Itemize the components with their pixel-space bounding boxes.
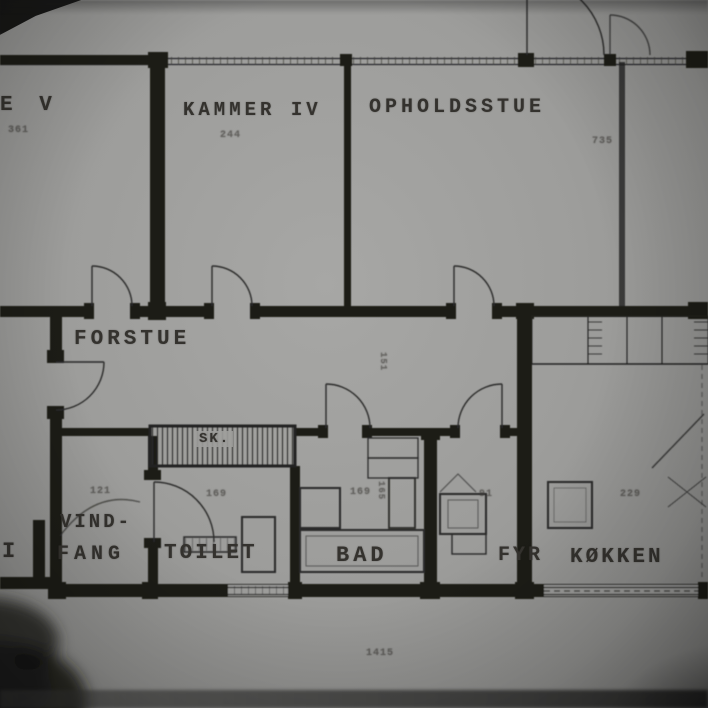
- area-fyr: 91: [479, 489, 493, 500]
- room-label-kokken: KØKKEN: [570, 546, 664, 569]
- thumb-shadow: [0, 598, 87, 708]
- dim-bad-vertical: 165: [376, 481, 386, 500]
- floorplan-linework: [0, 0, 708, 708]
- dim-bottom-total: 1415: [366, 648, 394, 659]
- closet-label-sk: SK.: [196, 431, 233, 447]
- room-label-opholdsstue: OPHOLDSSTUE: [369, 96, 545, 119]
- area-bad: 169: [350, 487, 371, 498]
- room-label-bad: BAD: [336, 543, 388, 568]
- room-label-fyr: FYR: [498, 544, 543, 567]
- area-kokken: 229: [620, 489, 641, 500]
- dim-hall-vertical: 151: [378, 352, 388, 371]
- floorplan-photo: E V 361 KAMMER IV 244 OPHOLDSSTUE 735 FO…: [0, 0, 708, 708]
- room-label-partial-left: I: [2, 539, 15, 564]
- area-kammer-iv: 244: [220, 130, 241, 141]
- room-label-vindfang-line1: VIND-: [60, 511, 132, 533]
- area-kammer-v: 361: [8, 125, 29, 136]
- room-label-vindfang-line2: FANG: [57, 543, 125, 566]
- room-label-forstue: FORSTUE: [74, 328, 190, 351]
- room-label-kammer-v: E V: [0, 94, 59, 117]
- area-vindfang: 121: [90, 486, 111, 497]
- room-label-kammer-iv: KAMMER IV: [183, 99, 322, 121]
- room-label-toilet: TOILET: [164, 542, 258, 565]
- area-toilet: 169: [206, 489, 227, 500]
- area-opholdsstue: 735: [592, 136, 613, 147]
